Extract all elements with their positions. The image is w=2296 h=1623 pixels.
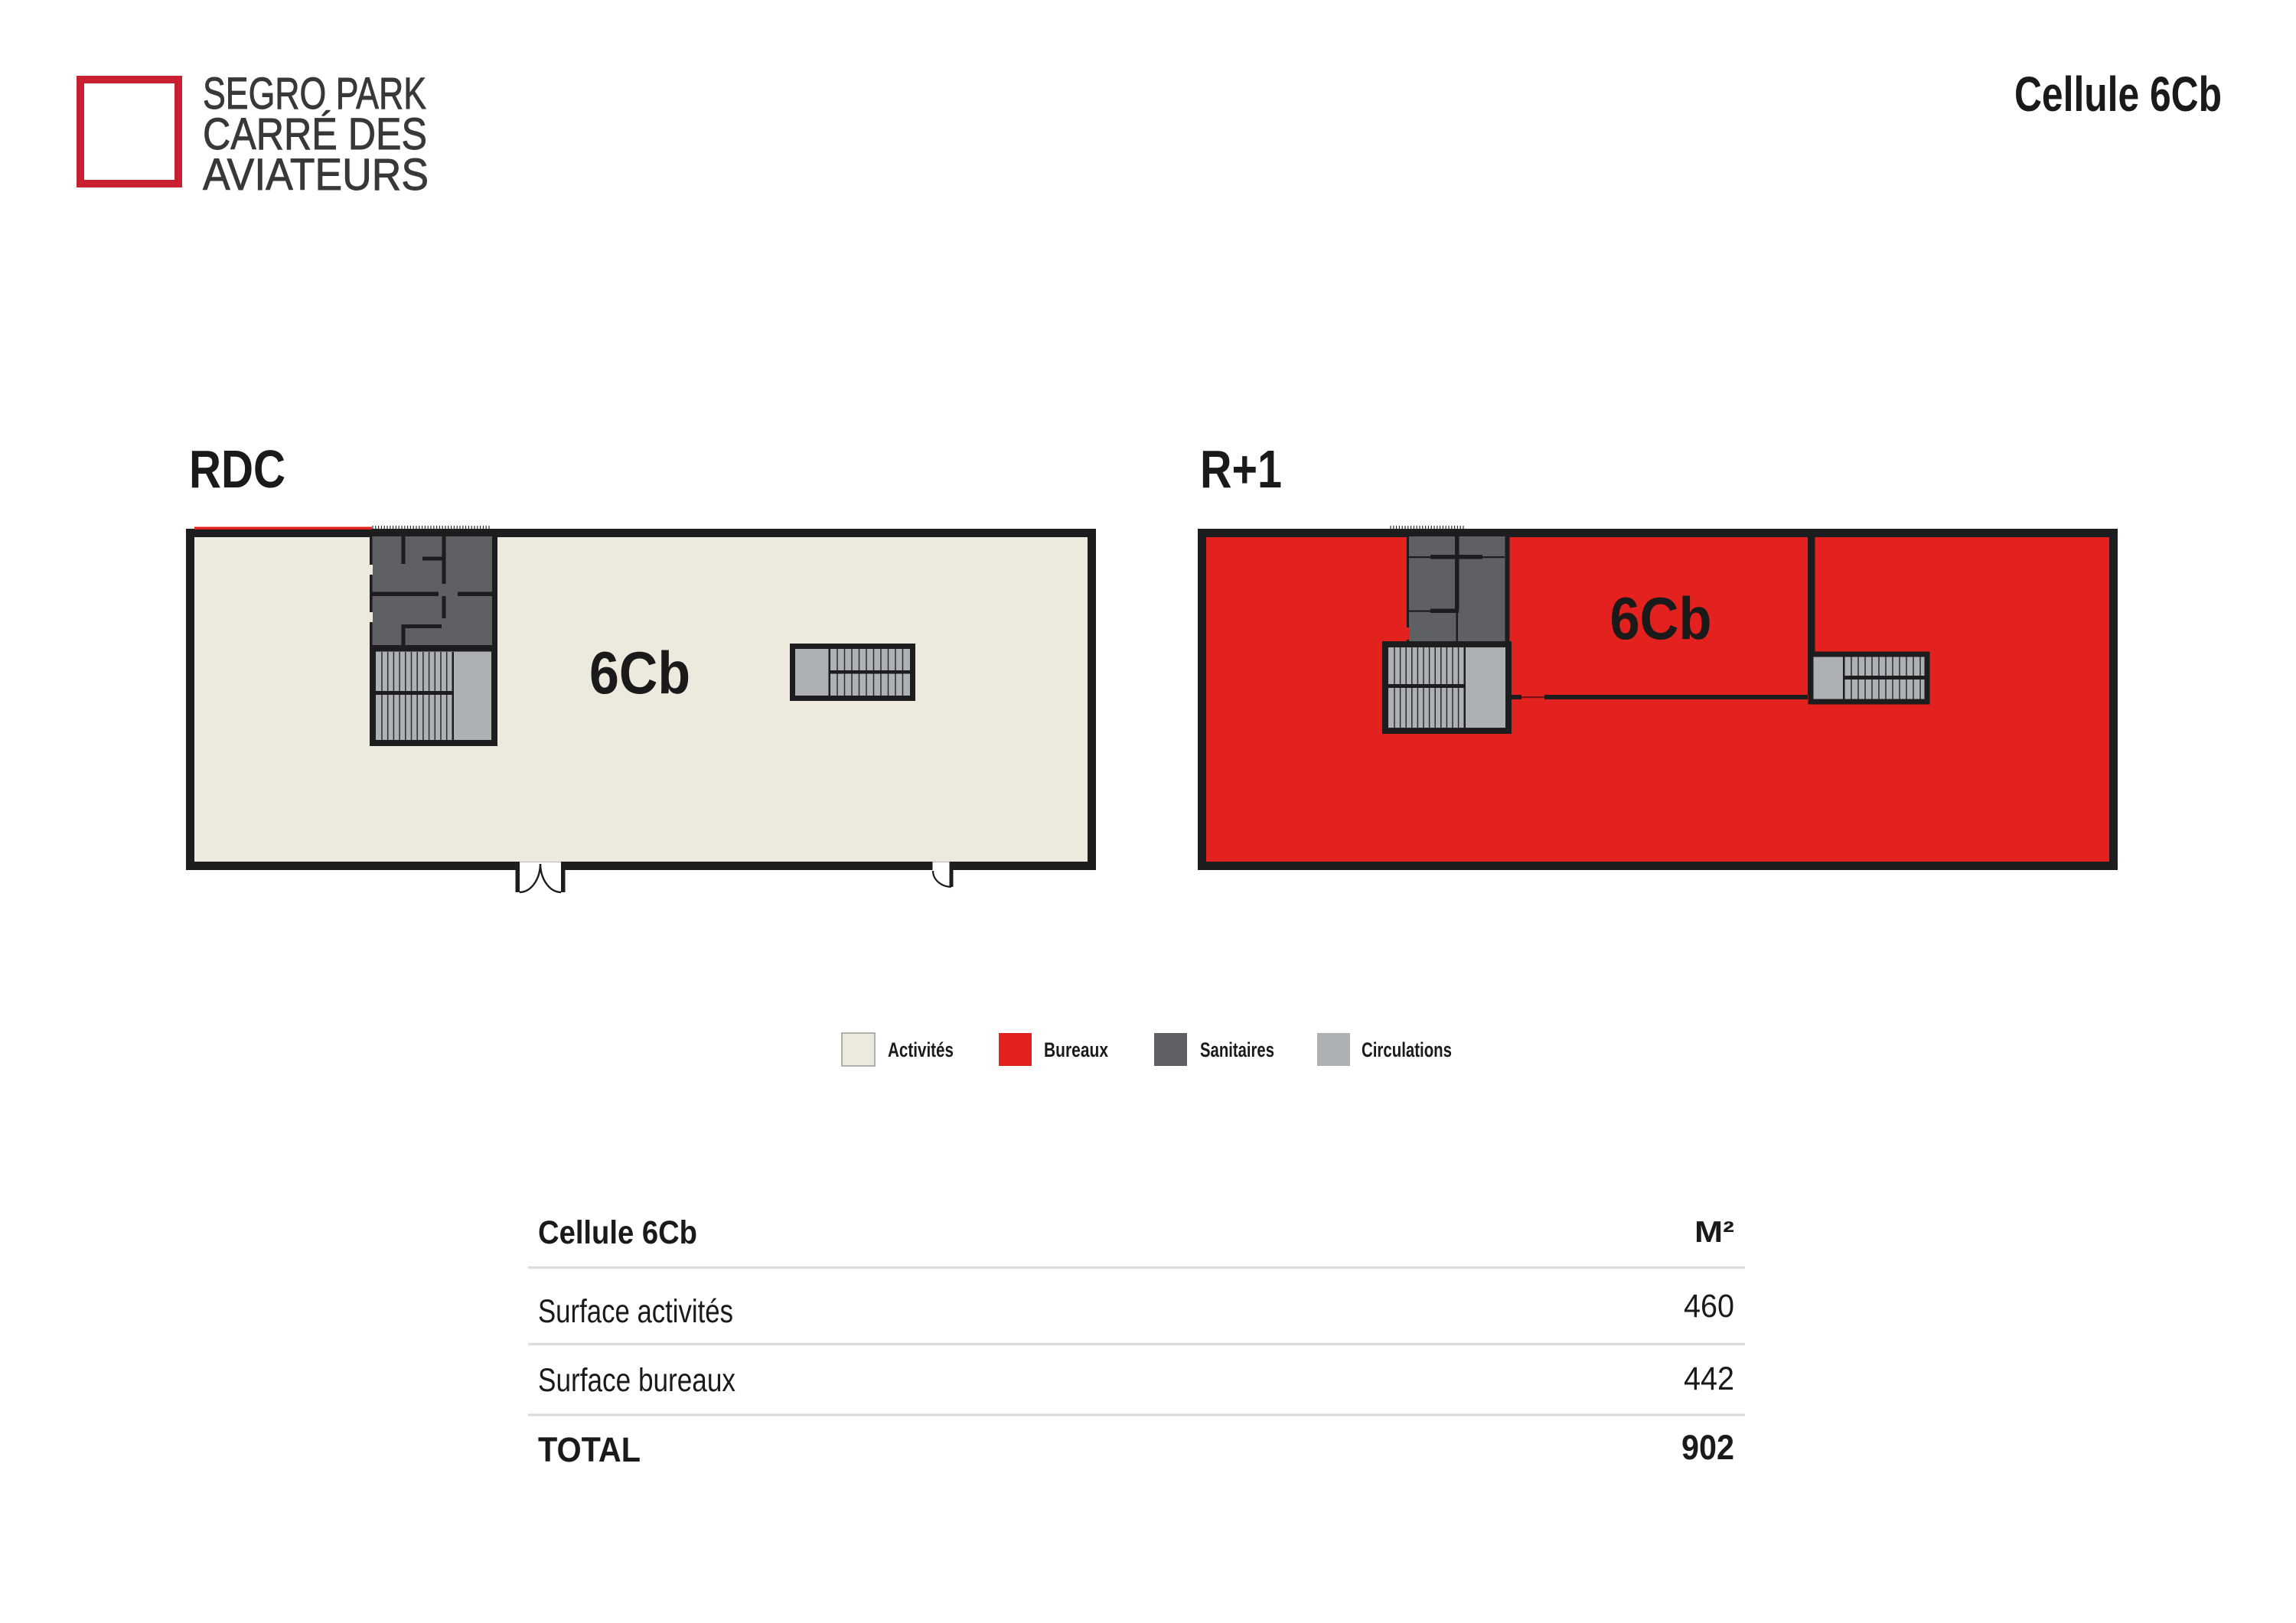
svg-text:Cellule 6Cb: Cellule 6Cb — [2014, 67, 2222, 122]
svg-text:Activités: Activités — [888, 1038, 954, 1061]
svg-text:442: 442 — [1684, 1361, 1734, 1397]
svg-text:Surface activités: Surface activités — [538, 1293, 733, 1330]
svg-text:Surface bureaux: Surface bureaux — [538, 1362, 735, 1399]
svg-text:AVIATEURS: AVIATEURS — [203, 150, 429, 200]
svg-text:Cellule 6Cb: Cellule 6Cb — [538, 1214, 697, 1251]
svg-text:Bureaux: Bureaux — [1044, 1038, 1108, 1061]
svg-text:902: 902 — [1681, 1428, 1734, 1467]
svg-text:6Cb: 6Cb — [1610, 585, 1712, 652]
svg-text:M²: M² — [1694, 1216, 1734, 1249]
svg-text:TOTAL: TOTAL — [538, 1430, 641, 1469]
svg-text:Sanitaires: Sanitaires — [1200, 1038, 1274, 1061]
svg-text:R+1: R+1 — [1200, 439, 1282, 499]
svg-text:6Cb: 6Cb — [589, 639, 690, 706]
svg-text:460: 460 — [1684, 1288, 1734, 1325]
svg-text:RDC: RDC — [189, 439, 285, 499]
svg-text:Circulations: Circulations — [1362, 1038, 1452, 1061]
